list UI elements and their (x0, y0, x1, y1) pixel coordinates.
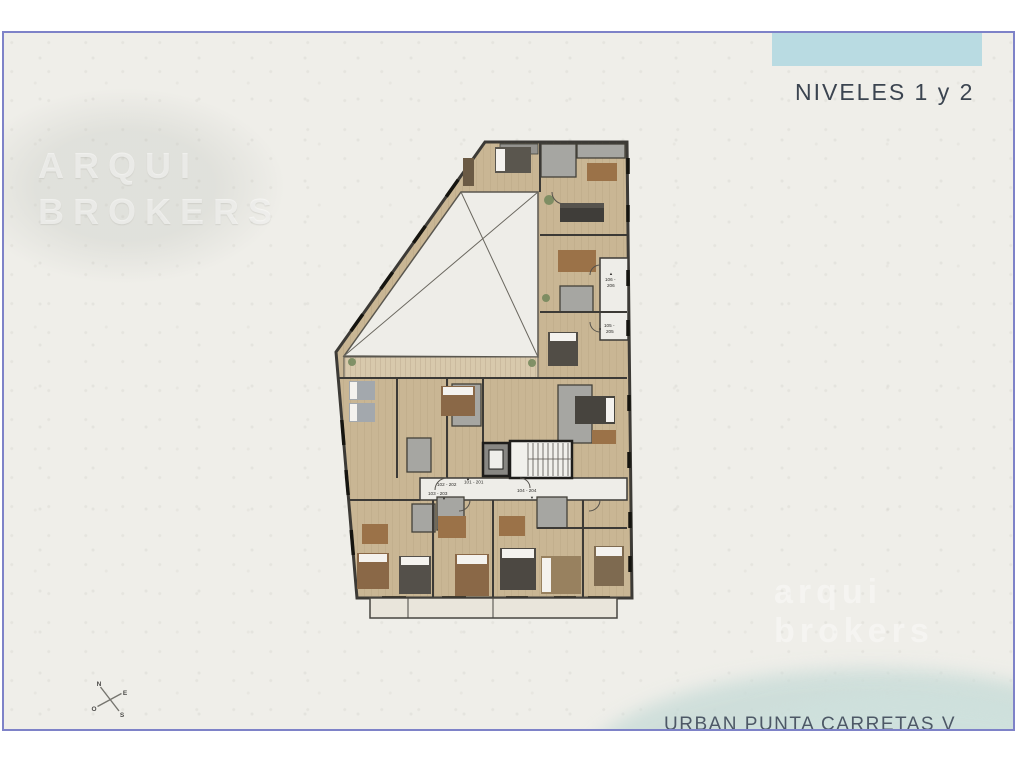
svg-text:205: 205 (606, 329, 614, 334)
bed (541, 556, 581, 594)
bed (495, 147, 531, 173)
plan-sheet: NIVELES 1 y 2 ARQUI BROKERS arqui broker… (2, 31, 1015, 731)
bed (548, 332, 578, 366)
svg-text:▼: ▼ (530, 495, 534, 500)
bed (500, 548, 536, 590)
stair-core (483, 441, 572, 478)
bed (357, 553, 389, 589)
desk (592, 430, 616, 444)
sofa (560, 203, 604, 222)
svg-text:▼: ▼ (442, 496, 446, 501)
unit-106-label: 106 - (605, 277, 616, 282)
listing-image: NIVELES 1 y 2 ARQUI BROKERS arqui broker… (0, 0, 1024, 768)
compass-west: O (91, 706, 96, 713)
dining-table (438, 516, 466, 538)
compass-east: E (123, 690, 128, 697)
dining-table (558, 250, 596, 272)
svg-text:◄: ◄ (598, 327, 601, 331)
balcony (370, 598, 617, 618)
svg-text:▲: ▲ (466, 476, 470, 481)
compass-north: N (97, 681, 102, 688)
unit-102-label: 102 - 202 (437, 482, 457, 487)
wardrobe (463, 158, 474, 186)
floor-plan: 102 - 202 101 - 201 103 - 203 104 - 204 … (4, 33, 1013, 729)
patio-terrace (344, 192, 538, 378)
svg-text:▲: ▲ (609, 271, 613, 276)
bed (455, 554, 489, 596)
bed (594, 546, 624, 586)
bed (399, 556, 431, 594)
svg-text:206: 206 (607, 283, 615, 288)
bed (441, 386, 475, 416)
dining-table (499, 516, 525, 536)
compass-rose: N E O S (91, 681, 127, 719)
desk (587, 163, 617, 181)
compass-south: S (120, 712, 125, 719)
unit-105-label: 105 - (604, 323, 615, 328)
dining-table (362, 524, 388, 544)
unit-104-label: 104 - 204 (517, 488, 537, 493)
bed (575, 396, 615, 424)
